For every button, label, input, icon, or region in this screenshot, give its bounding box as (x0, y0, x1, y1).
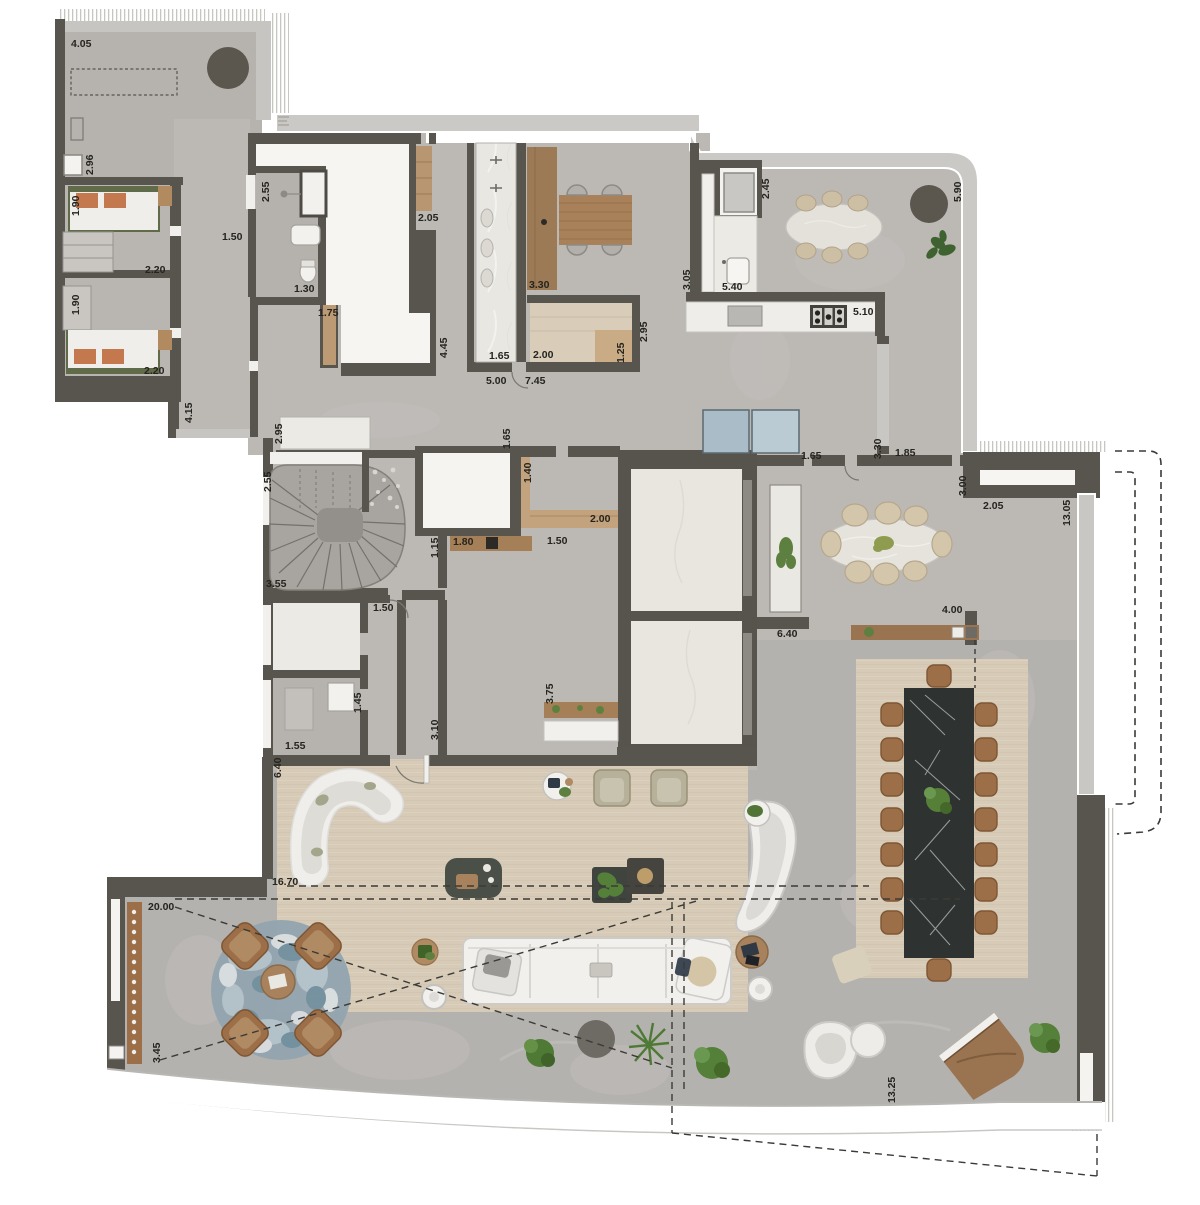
svg-text:1.75: 1.75 (318, 307, 339, 319)
svg-text:2.55: 2.55 (260, 181, 272, 202)
svg-text:2.00: 2.00 (533, 349, 554, 361)
svg-text:4.00: 4.00 (942, 604, 963, 616)
svg-text:3.45: 3.45 (151, 1042, 163, 1063)
svg-text:7.45: 7.45 (525, 375, 546, 387)
svg-text:5.10: 5.10 (853, 306, 874, 318)
svg-text:3.00: 3.00 (957, 475, 969, 496)
svg-text:1.50: 1.50 (373, 602, 394, 614)
svg-text:2.05: 2.05 (983, 500, 1004, 512)
svg-text:2.05: 2.05 (418, 212, 439, 224)
svg-text:5.90: 5.90 (952, 181, 964, 202)
svg-text:2.55: 2.55 (262, 471, 274, 492)
svg-text:2.20: 2.20 (144, 365, 165, 377)
svg-text:1.30: 1.30 (294, 283, 315, 295)
svg-text:2.20: 2.20 (145, 264, 166, 276)
svg-text:1.90: 1.90 (70, 195, 82, 216)
svg-text:6.40: 6.40 (272, 757, 284, 778)
svg-text:2.96: 2.96 (84, 154, 96, 175)
svg-text:1.15: 1.15 (429, 537, 441, 558)
svg-text:16.70: 16.70 (272, 876, 298, 888)
svg-text:2.45: 2.45 (760, 178, 772, 199)
svg-text:1.85: 1.85 (895, 447, 916, 459)
svg-text:2.95: 2.95 (638, 321, 650, 342)
svg-text:2.95: 2.95 (273, 423, 285, 444)
svg-text:1.80: 1.80 (453, 536, 474, 548)
svg-text:1.90: 1.90 (70, 294, 82, 315)
svg-text:13.25: 13.25 (886, 1077, 898, 1103)
svg-text:3.55: 3.55 (266, 578, 287, 590)
svg-text:1.25: 1.25 (615, 342, 627, 363)
svg-text:1.50: 1.50 (222, 231, 243, 243)
svg-text:3.75: 3.75 (544, 683, 556, 704)
svg-text:20.00: 20.00 (148, 901, 174, 913)
svg-text:4.15: 4.15 (183, 402, 195, 423)
svg-text:1.65: 1.65 (501, 428, 513, 449)
svg-text:1.65: 1.65 (489, 350, 510, 362)
svg-text:1.40: 1.40 (522, 462, 534, 483)
svg-text:3.10: 3.10 (429, 719, 441, 740)
svg-text:1.55: 1.55 (285, 740, 306, 752)
svg-text:1.45: 1.45 (352, 692, 364, 713)
svg-text:5.00: 5.00 (486, 375, 507, 387)
svg-text:3.30: 3.30 (872, 438, 884, 459)
svg-text:4.05: 4.05 (71, 38, 92, 50)
svg-text:1.50: 1.50 (547, 535, 568, 547)
svg-text:3.30: 3.30 (529, 279, 550, 291)
svg-text:1.65: 1.65 (801, 450, 822, 462)
svg-text:3.05: 3.05 (681, 269, 693, 290)
svg-text:2.00: 2.00 (590, 513, 611, 525)
svg-text:6.40: 6.40 (777, 628, 798, 640)
svg-text:4.45: 4.45 (438, 337, 450, 358)
svg-text:13.05: 13.05 (1061, 500, 1073, 526)
svg-text:5.40: 5.40 (722, 281, 743, 293)
